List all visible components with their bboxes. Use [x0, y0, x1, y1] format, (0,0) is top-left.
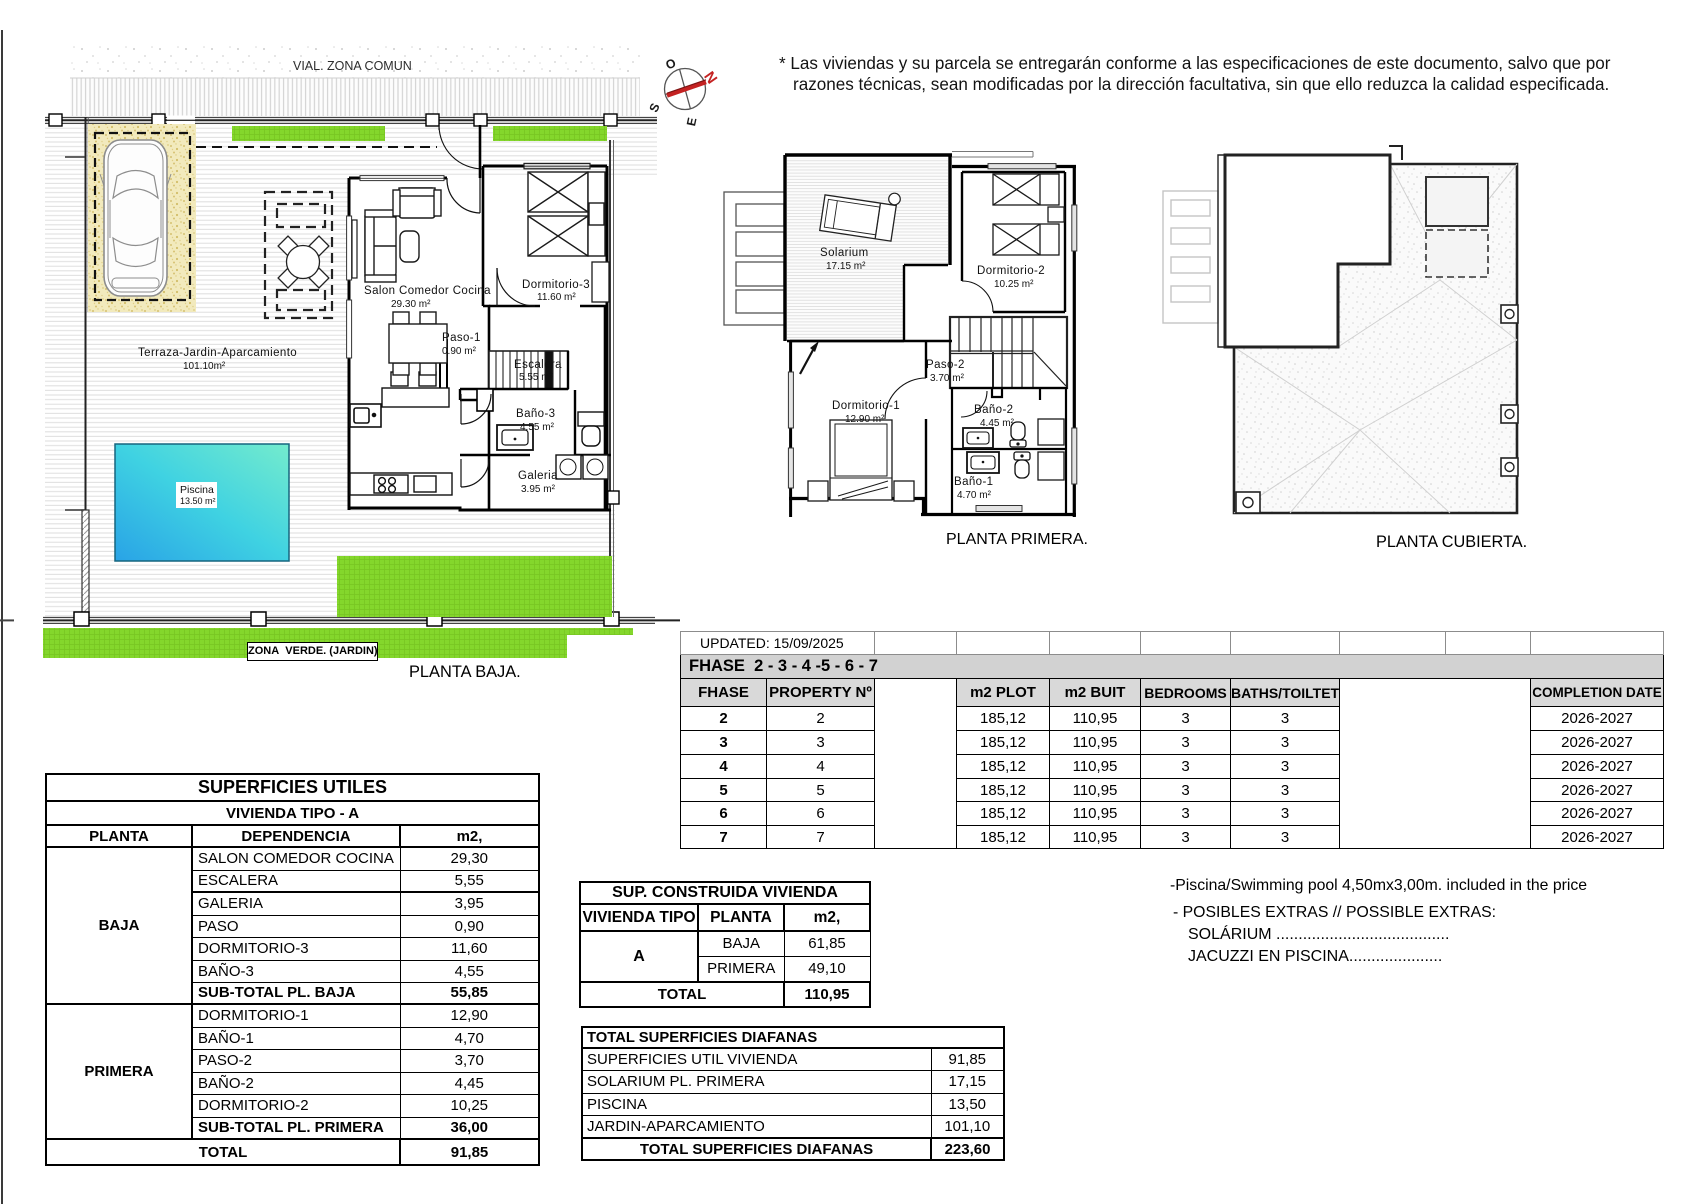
- svg-text:E: E: [684, 116, 699, 127]
- svg-text:Dormitorio-1: Dormitorio-1: [832, 400, 900, 412]
- svg-text:101.10m²: 101.10m²: [183, 361, 226, 372]
- svg-text:Baño-2: Baño-2: [974, 404, 1013, 416]
- svg-text:4.70 m²: 4.70 m²: [957, 490, 992, 501]
- svg-text:Paso-2: Paso-2: [926, 359, 965, 371]
- svg-text:S: S: [647, 101, 663, 114]
- svg-text:13.50 m²: 13.50 m²: [180, 496, 216, 506]
- svg-text:Galeria: Galeria: [518, 470, 558, 482]
- svg-text:Salon Comedor Cocina: Salon Comedor Cocina: [364, 285, 491, 297]
- svg-text:17.15 m²: 17.15 m²: [826, 261, 866, 272]
- svg-text:Paso-1: Paso-1: [442, 332, 481, 344]
- svg-text:Terraza-Jardin-Aparcamiento: Terraza-Jardin-Aparcamiento: [138, 347, 297, 359]
- svg-text:Piscina: Piscina: [180, 484, 214, 496]
- svg-text:3.70 m²: 3.70 m²: [930, 373, 965, 384]
- svg-text:0.90 m²: 0.90 m²: [442, 346, 477, 357]
- svg-text:Solarium: Solarium: [820, 247, 869, 259]
- svg-text:Escalera: Escalera: [514, 359, 562, 371]
- svg-text:4.55 m²: 4.55 m²: [520, 422, 555, 433]
- svg-text:Baño-3: Baño-3: [516, 408, 555, 420]
- svg-text:29.30 m²: 29.30 m²: [391, 299, 431, 310]
- svg-text:11.60 m²: 11.60 m²: [537, 292, 576, 303]
- svg-text:Dormitorio-3: Dormitorio-3: [522, 279, 590, 291]
- svg-text:Dormitorio-2: Dormitorio-2: [977, 265, 1045, 277]
- svg-text:10.25 m²: 10.25 m²: [994, 279, 1034, 290]
- svg-text:VIAL. ZONA COMUN: VIAL. ZONA COMUN: [293, 59, 412, 73]
- svg-text:5.55 m²: 5.55 m²: [519, 372, 554, 383]
- svg-text:3.95 m²: 3.95 m²: [521, 484, 556, 495]
- svg-text:Baño-1: Baño-1: [954, 476, 993, 488]
- svg-text:12.90 m²: 12.90 m²: [845, 414, 885, 425]
